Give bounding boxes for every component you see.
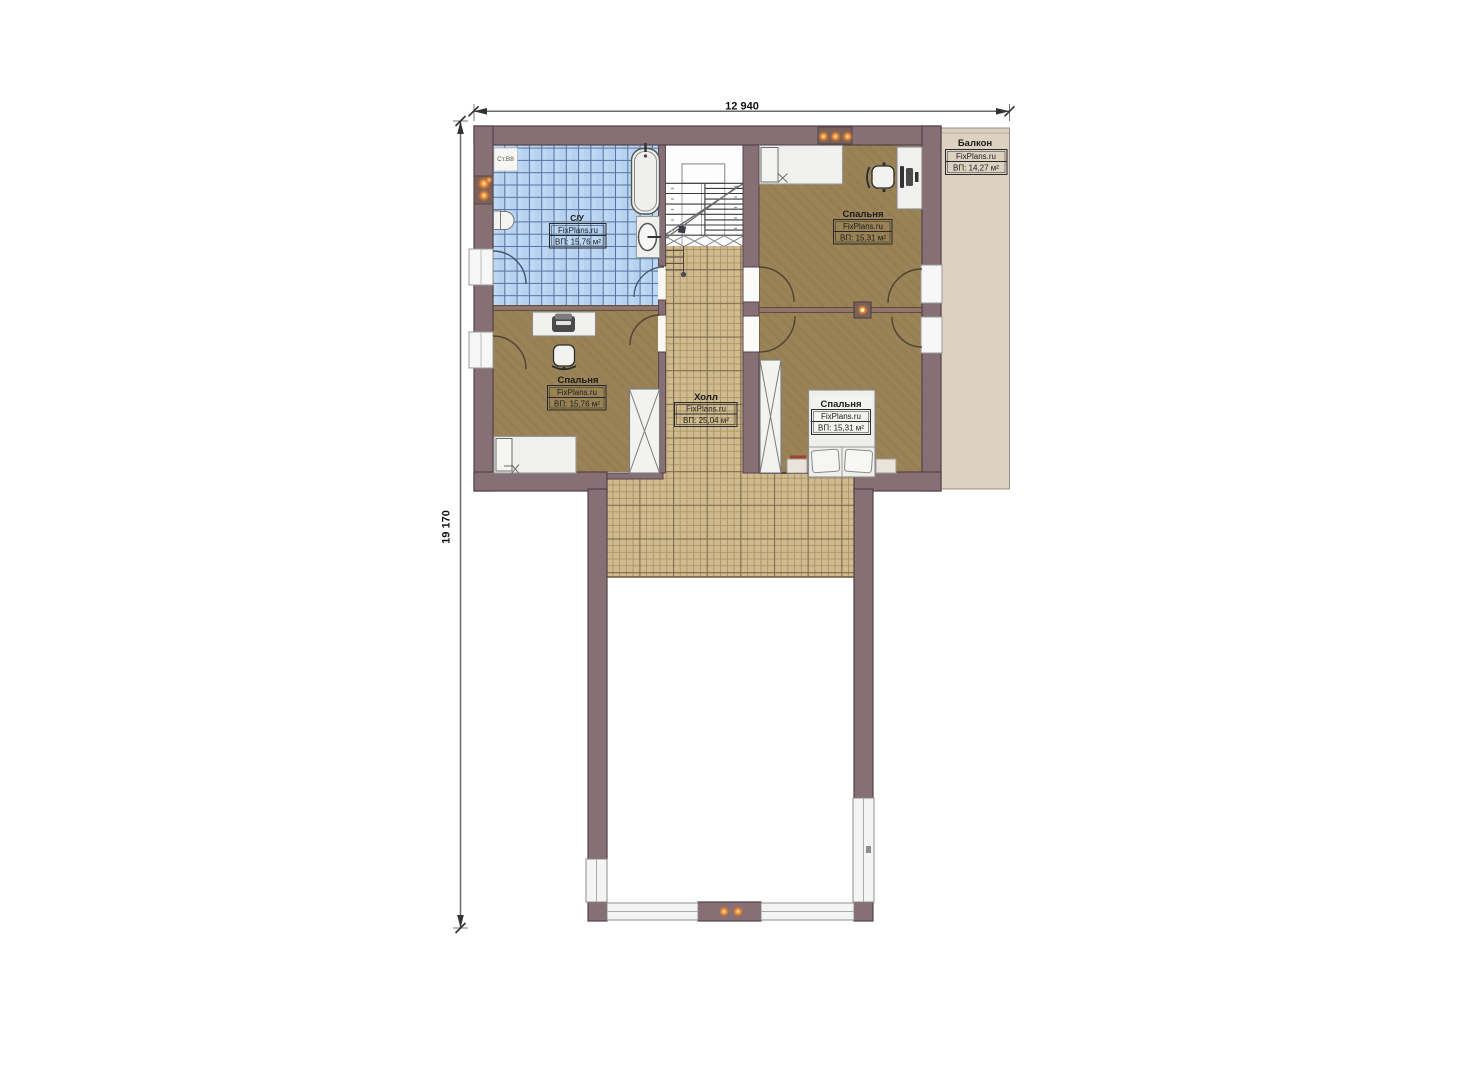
svg-text:Ст.В8: Ст.В8 [497, 156, 514, 163]
svg-text:ВП: 14,27 м²: ВП: 14,27 м² [953, 164, 999, 173]
svg-text:FixPlans.ru: FixPlans.ru [686, 405, 726, 414]
svg-text:ВП: 15,31 м²: ВП: 15,31 м² [840, 234, 886, 243]
svg-text:Балкон: Балкон [958, 138, 993, 149]
svg-text:ВП: 25,04 м²: ВП: 25,04 м² [683, 416, 729, 425]
svg-text:Спальня: Спальня [820, 399, 861, 410]
svg-text:FixPlans.ru: FixPlans.ru [843, 222, 883, 231]
svg-text:Спальня: Спальня [557, 375, 598, 386]
svg-text:ВП: 15,76 м²: ВП: 15,76 м² [554, 400, 600, 409]
svg-text:FixPlans.ru: FixPlans.ru [821, 412, 861, 421]
svg-text:FixPlans.ru: FixPlans.ru [558, 226, 598, 235]
svg-text:Спальня: Спальня [842, 209, 883, 220]
svg-text:ВП: 15,31 м²: ВП: 15,31 м² [818, 424, 864, 433]
svg-text:Холл: Холл [694, 392, 718, 403]
svg-text:С/У: С/У [570, 213, 585, 223]
svg-text:ВП: 15,76 м²: ВП: 15,76 м² [555, 238, 601, 247]
svg-text:FixPlans.ru: FixPlans.ru [557, 388, 597, 397]
svg-text:FixPlans.ru: FixPlans.ru [956, 152, 996, 161]
svg-text:19 170: 19 170 [441, 510, 453, 544]
